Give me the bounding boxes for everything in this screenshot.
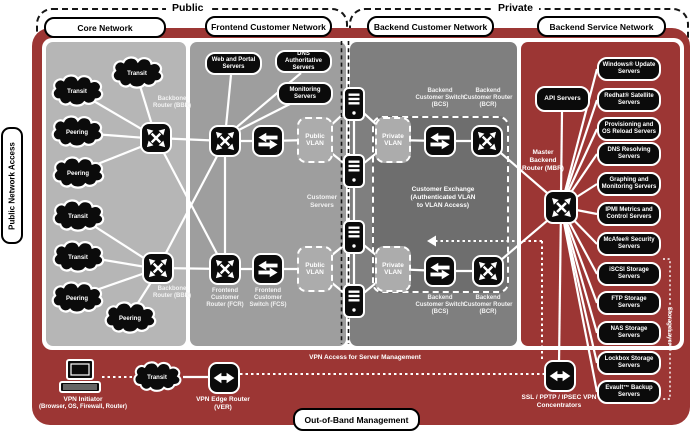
mbr-label: Master Backend Router (MBR) — [520, 149, 566, 172]
private-zone-label: Private — [492, 1, 539, 15]
backend-service-header: Backend Service Network — [537, 16, 666, 37]
customer-server-icon — [343, 284, 365, 318]
oob-management-header: Out-of-Band Management — [293, 408, 420, 431]
public-vlan-box-top: Public VLAN — [297, 117, 333, 163]
customer-servers-label: Customer Servers — [296, 194, 348, 209]
mcafee-security-servers-box: McAfee® Security Servers — [597, 232, 661, 256]
backend-customer-header: Backend Customer Network — [367, 16, 494, 37]
api-servers-box: API Servers — [535, 86, 590, 112]
vpn-edge-router-icon — [208, 362, 240, 394]
bbr-label-top: Backbone Router (BBR) — [150, 96, 194, 110]
transit-cloud: Transit — [50, 239, 106, 275]
peering-cloud: Peering — [49, 280, 105, 316]
fcs-label: Frontend Customer Switch (FCS) — [244, 288, 292, 309]
private-vlan-box-top: Private VLAN — [375, 117, 411, 163]
lockbox-storage-servers-box: Lockbox Storage Servers — [597, 351, 661, 375]
storagelayer-label: StorageLayer™ — [660, 299, 672, 359]
dns-resolving-servers-box: DNS Resolving Servers — [597, 142, 661, 166]
network-diagram: Public Private Core Network Frontend Cus… — [0, 0, 697, 439]
exchange-line3: to VLAN Access) — [383, 202, 503, 210]
web-portal-servers-box: Web and Portal Servers — [205, 52, 262, 75]
public-vlan-box-bottom: Public VLAN — [297, 246, 333, 292]
transit-cloud: Transit — [109, 55, 165, 91]
exchange-line2: (Authenticated VLAN — [383, 194, 503, 202]
public-network-access-label: Public Network Access — [1, 127, 23, 244]
private-vlan-box-bottom: Private VLAN — [375, 246, 411, 292]
frontend-customer-router-icon-top — [209, 125, 241, 157]
backend-customer-switch-icon-bottom — [424, 255, 456, 287]
bcs-label-bottom: Backend Customer Switch (BCS) — [414, 295, 466, 316]
backbone-router-icon-top — [140, 122, 172, 154]
bcr-label-top: Backend Customer Router (BCR) — [462, 88, 514, 109]
backend-customer-router-icon-bottom — [472, 255, 504, 287]
windows-update-servers-box: Windows® Update Servers — [597, 57, 661, 81]
frontend-network-header: Frontend Customer Network — [205, 16, 332, 37]
transit-cloud: Transit — [49, 73, 105, 109]
vpn-concentrators-label: SSL / PPTP / IPSEC VPN Concentrators — [517, 394, 601, 410]
core-network-header: Core Network — [44, 17, 166, 38]
frontend-customer-switch-icon-top — [252, 125, 284, 157]
vpn-initiator-laptop-icon — [58, 359, 102, 400]
customer-server-icon — [343, 87, 365, 121]
master-backend-router-icon — [544, 190, 578, 224]
fcr-label: Frontend Customer Router (FCR) — [201, 288, 249, 309]
oob-transit-cloud: Transit — [131, 360, 183, 394]
peering-cloud: Peering — [102, 300, 158, 336]
vpn-concentrators-icon — [544, 360, 576, 392]
ftp-storage-servers-box: FTP Storage Servers — [597, 291, 661, 315]
vpn-initiator-line1: VPN Initiator — [18, 396, 148, 404]
transit-cloud: Transit — [50, 198, 106, 234]
customer-server-icon — [343, 220, 365, 254]
bcr-label-bottom: Backend Customer Router (BCR) — [462, 295, 514, 316]
frontend-customer-router-icon-bottom — [209, 253, 241, 285]
vpn-access-label: VPN Access for Server Management — [290, 354, 440, 362]
backbone-router-icon-bottom — [142, 252, 174, 284]
dns-authoritative-servers-box: DNS Authoritative Servers — [275, 50, 332, 73]
peering-cloud: Peering — [50, 155, 106, 191]
bbr-label-bottom: Backbone Router (BBR) — [150, 286, 194, 300]
iscsi-storage-servers-box: iSCSI Storage Servers — [597, 262, 661, 286]
customer-server-icon — [343, 154, 365, 188]
exchange-line1: Customer Exchange — [383, 186, 503, 194]
ver-label: VPN Edge Router (VER) — [195, 396, 251, 412]
provisioning-os-reload-servers-box: Provisioning and OS Reload Servers — [597, 117, 661, 141]
nas-storage-servers-box: NAS Storage Servers — [597, 321, 661, 345]
backend-customer-router-icon-top — [471, 125, 503, 157]
frontend-customer-switch-icon-bottom — [252, 253, 284, 285]
bcs-label-top: Backend Customer Switch (BCS) — [414, 88, 466, 109]
graphing-monitoring-servers-box: Graphing and Monitoring Servers — [597, 172, 661, 196]
public-zone-label: Public — [166, 1, 210, 15]
monitoring-servers-box: Monitoring Servers — [277, 82, 333, 105]
ipmi-metrics-control-servers-box: IPMI Metrics and Control Servers — [597, 202, 661, 226]
backend-customer-switch-icon-top — [424, 125, 456, 157]
redhat-satellite-servers-box: Redhat® Satellite Servers — [597, 88, 661, 112]
vpn-initiator-label: VPN Initiator (Browser, OS, Firewall, Ro… — [18, 396, 148, 411]
customer-exchange-label: Customer Exchange (Authenticated VLAN to… — [383, 186, 503, 209]
vpn-initiator-line2: (Browser, OS, Firewall, Router) — [18, 404, 148, 411]
evault-backup-servers-box: Evault™ Backup Servers — [597, 380, 661, 404]
peering-cloud: Peering — [49, 114, 105, 150]
